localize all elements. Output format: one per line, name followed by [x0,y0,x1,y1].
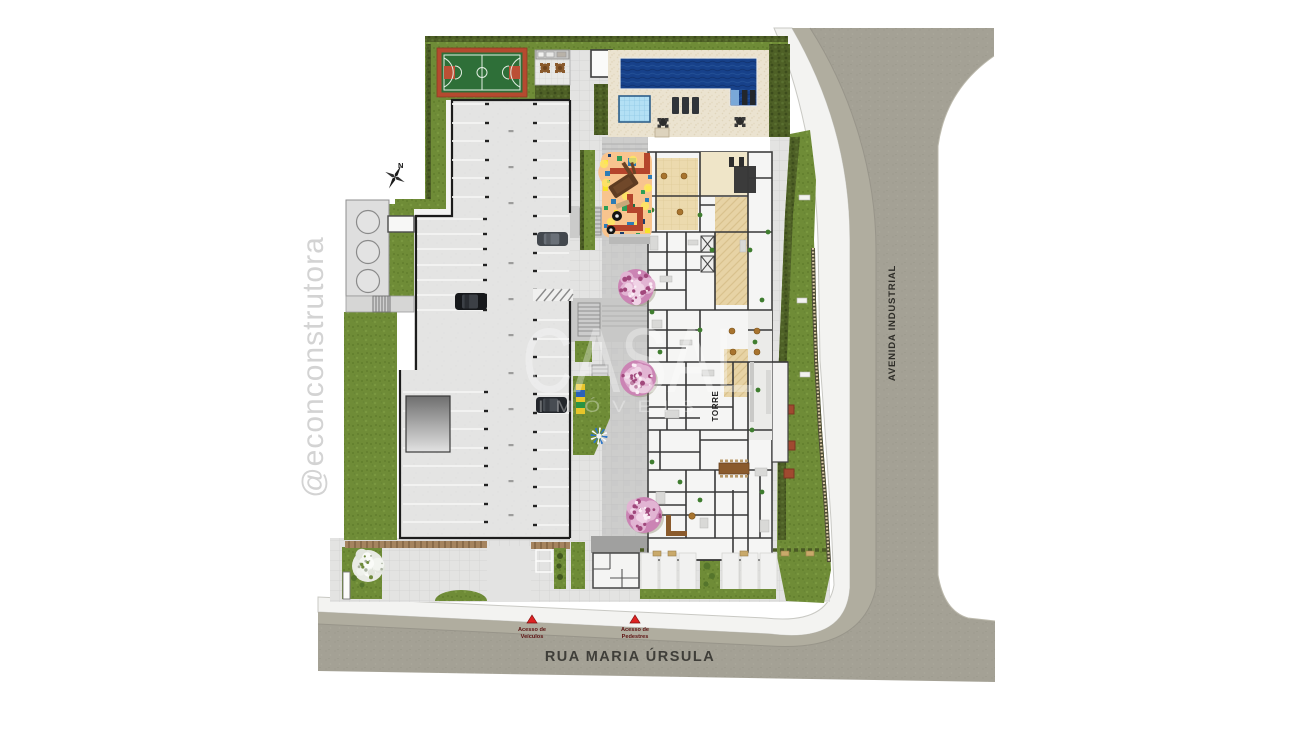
svg-text:IMÓVEIS: IMÓVEIS [538,397,706,416]
svg-text:Pedestres: Pedestres [622,634,649,640]
svg-text:@econconstrutora: @econconstrutora [297,236,330,498]
svg-text:Veículos: Veículos [521,634,544,640]
svg-text:Acesso de: Acesso de [518,627,546,633]
svg-text:N: N [398,161,403,170]
svg-text:Acesso de: Acesso de [621,627,649,633]
svg-text:RUA MARIA ÚRSULA: RUA MARIA ÚRSULA [545,647,715,665]
svg-text:AVENIDA INDUSTRIAL: AVENIDA INDUSTRIAL [887,265,898,381]
